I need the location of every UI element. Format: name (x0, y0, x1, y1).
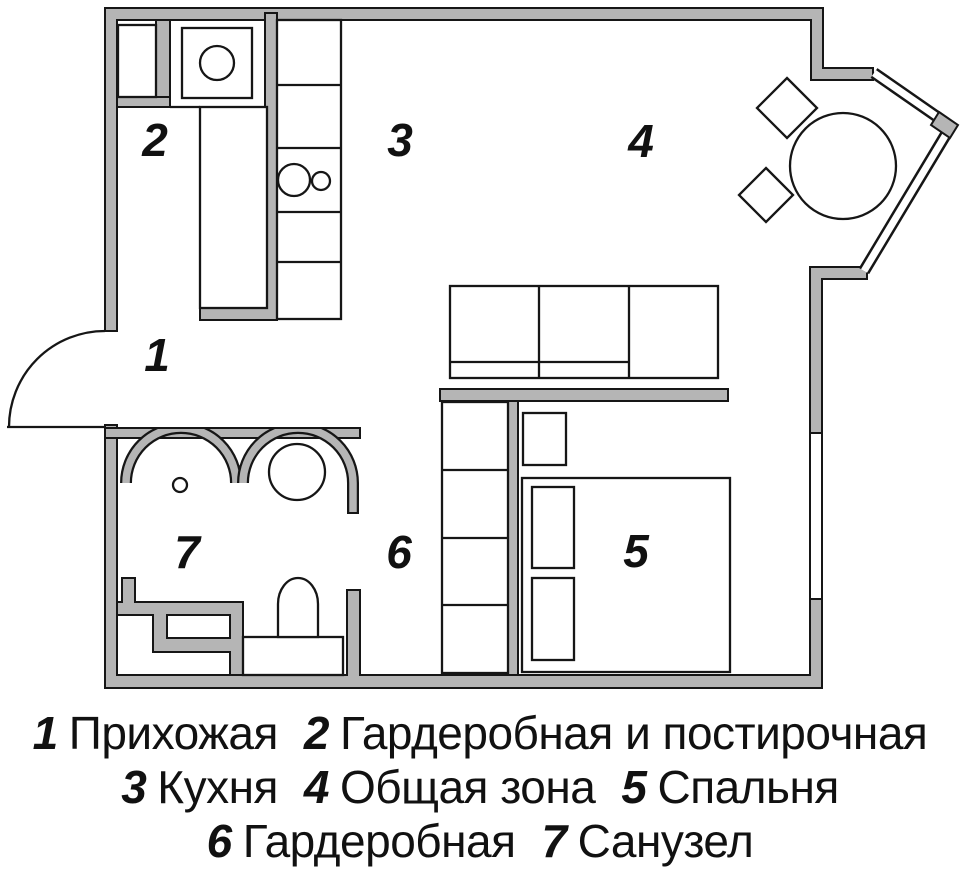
legend-item: 7 Санузел (542, 814, 754, 868)
closet-bottom-wall (117, 97, 170, 107)
legend-label: Спальня (657, 760, 838, 814)
legend-label: Кухня (157, 760, 278, 814)
wardrobe-bedroom-wall (508, 401, 518, 675)
legend-number: 1 (33, 706, 58, 760)
legend-row-2: 3 Кухня 4 Общая зона 5 Спальня (108, 760, 852, 814)
bedroom-window (810, 433, 822, 599)
room-label-2: 2 (141, 114, 168, 166)
dining-table (790, 113, 896, 219)
kitchen-sink-small-icon (312, 172, 330, 190)
bay-window-upper (874, 73, 946, 123)
floor-plan-page: 1 2 3 4 5 6 7 1 Прихожая 2 Гардеробная и… (0, 0, 960, 870)
bathroom-basin (269, 444, 325, 500)
toilet-platform (243, 637, 343, 675)
pillow-bottom (532, 578, 574, 660)
legend-number: 5 (621, 760, 646, 814)
room-label-4: 4 (627, 115, 654, 167)
room-label-1: 1 (144, 329, 170, 381)
room-label-7: 7 (174, 526, 202, 578)
legend: 1 Прихожая 2 Гардеробная и постирочная 3… (0, 700, 960, 868)
dining-chair-bottom (739, 168, 793, 222)
washing-machine-drum-icon (200, 46, 234, 80)
bedroom-partition-wall (440, 389, 728, 401)
kitchen-sink-icon (278, 164, 310, 196)
legend-label: Санузел (578, 814, 754, 868)
entrance-door (7, 331, 105, 427)
furniture (118, 20, 896, 675)
legend-number: 3 (121, 760, 146, 814)
closet-stub-wall (156, 20, 170, 107)
legend-row-3: 6 Гардеробная 7 Санузел (194, 814, 767, 868)
legend-item: 2 Гардеробная и постирочная (304, 706, 927, 760)
legend-item: 6 Гардеробная (207, 814, 516, 868)
shower-drain-icon (173, 478, 187, 492)
hall-closet (118, 25, 156, 97)
room-label-6: 6 (386, 526, 412, 578)
legend-row-1: 1 Прихожая 2 Гардеробная и постирочная (20, 706, 941, 760)
legend-number: 4 (304, 760, 329, 814)
legend-item: 4 Общая зона (304, 760, 595, 814)
nightstand (523, 413, 566, 465)
kitchen-counter (277, 20, 341, 319)
legend-label: Прихожая (69, 706, 278, 760)
legend-number: 6 (207, 814, 232, 868)
legend-number: 2 (304, 706, 329, 760)
legend-item: 3 Кухня (121, 760, 278, 814)
sofa (450, 286, 718, 378)
pillow-top (532, 487, 574, 568)
legend-label: Гардеробная (243, 814, 516, 868)
legend-item: 1 Прихожая (33, 706, 278, 760)
wardrobe-cabinet (200, 107, 267, 308)
legend-label: Гардеробная и постирочная (340, 706, 927, 760)
entrance-door-swing-arc (9, 331, 105, 427)
outer-wall-right-upper (810, 267, 867, 435)
toilet-bowl (278, 578, 318, 637)
bathroom-niche-walls (117, 578, 243, 675)
legend-number: 7 (542, 814, 567, 868)
floor-plan-drawing: 1 2 3 4 5 6 7 (0, 0, 960, 700)
legend-label: Общая зона (340, 760, 595, 814)
room-label-3: 3 (387, 114, 413, 166)
legend-item: 5 Спальня (621, 760, 838, 814)
room-label-5: 5 (623, 525, 650, 577)
wardrobe-shelves (442, 402, 508, 673)
floor-plan-svg: 1 2 3 4 5 6 7 (0, 0, 960, 700)
